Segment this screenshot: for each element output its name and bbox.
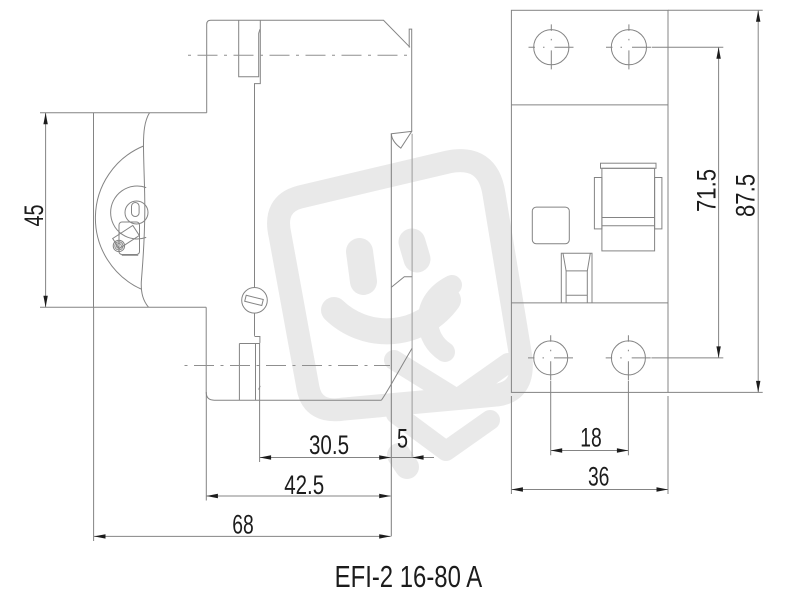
svg-text:68: 68	[232, 510, 254, 540]
svg-text:87.5: 87.5	[731, 174, 761, 217]
svg-text:71.5: 71.5	[692, 169, 722, 212]
svg-text:5: 5	[397, 424, 408, 454]
svg-text:EFI-2 16-80 A: EFI-2 16-80 A	[335, 560, 483, 594]
svg-text:42.5: 42.5	[284, 470, 324, 500]
svg-text:45: 45	[19, 205, 49, 227]
svg-text:18: 18	[580, 423, 602, 453]
svg-text:30.5: 30.5	[309, 430, 349, 460]
svg-text:36: 36	[588, 461, 610, 491]
